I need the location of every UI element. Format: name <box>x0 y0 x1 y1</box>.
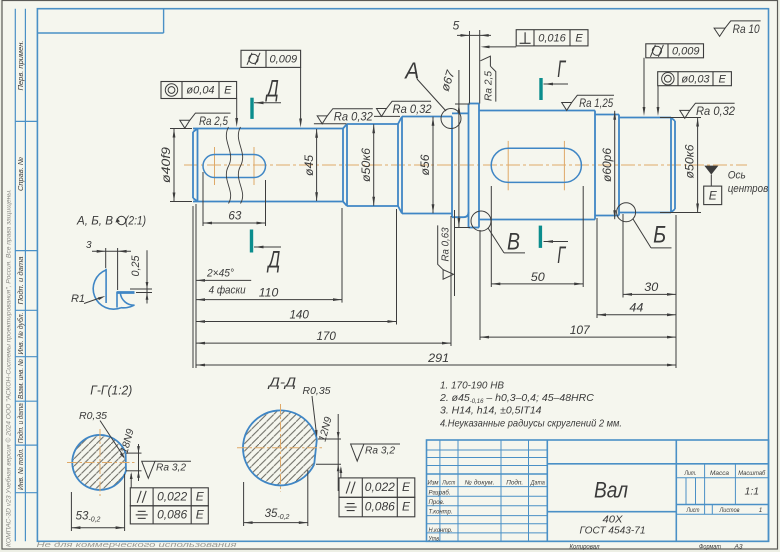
svg-text:Г-Г(1:2): Г-Г(1:2) <box>90 384 132 398</box>
svg-text:1: 1 <box>759 507 763 514</box>
svg-text:2×45°: 2×45° <box>206 268 234 280</box>
svg-text:50: 50 <box>531 270 545 284</box>
svg-text:КОМПАС-3D v23 Учебная версия ©: КОМПАС-3D v23 Учебная версия © 2024 ООО … <box>5 189 13 547</box>
svg-text:Д-Д: Д-Д <box>267 376 297 390</box>
svg-text:Перв. примен.: Перв. примен. <box>16 40 25 90</box>
svg-text:Подп. и дата: Подп. и дата <box>16 403 25 443</box>
svg-text:Г: Г <box>557 56 566 83</box>
svg-text:E: E <box>196 507 205 521</box>
svg-text:ø50к6: ø50к6 <box>683 144 697 178</box>
svg-text:5: 5 <box>453 19 460 33</box>
svg-text:140: 140 <box>289 307 309 321</box>
svg-text:ø50к6: ø50к6 <box>359 148 373 182</box>
svg-text:E: E <box>402 480 411 494</box>
svg-text:0,009: 0,009 <box>270 53 298 65</box>
svg-text:0,086: 0,086 <box>157 507 187 521</box>
svg-text:3. Н14, h14, ±0,5IT14: 3. Н14, h14, ±0,5IT14 <box>440 405 542 417</box>
svg-text:Разраб.: Разраб. <box>429 489 451 497</box>
svg-text:E: E <box>709 189 718 203</box>
svg-text:107: 107 <box>570 323 591 337</box>
svg-text:Ra 0,32: Ra 0,32 <box>696 106 736 118</box>
svg-text:R1: R1 <box>71 293 85 305</box>
svg-text:Н.контр.: Н.контр. <box>429 527 453 534</box>
svg-text:E: E <box>719 73 727 85</box>
svg-text:Пров.: Пров. <box>429 499 445 506</box>
svg-text:Формат: Формат <box>699 544 721 551</box>
svg-text:0,022: 0,022 <box>157 489 187 503</box>
svg-text:Справ. №: Справ. № <box>16 157 25 191</box>
svg-text:ø60p6: ø60p6 <box>600 148 614 182</box>
svg-text:0,009: 0,009 <box>672 45 700 57</box>
svg-text:44: 44 <box>629 301 643 315</box>
svg-text:Взам. инв. №: Взам. инв. № <box>16 359 25 399</box>
svg-text:Дата: Дата <box>530 479 545 486</box>
svg-text:Не для коммерческого использов: Не для коммерческого использования <box>37 541 237 549</box>
svg-text:(2:1): (2:1) <box>125 216 146 228</box>
svg-text:Ra 0,32: Ra 0,32 <box>393 104 433 116</box>
svg-text:Лист: Лист <box>442 479 456 486</box>
svg-text:4 фаски: 4 фаски <box>209 285 246 297</box>
svg-text:Ось: Ось <box>728 170 746 182</box>
svg-text:ø0,03: ø0,03 <box>681 73 710 85</box>
svg-text:E: E <box>402 500 411 514</box>
svg-text:Ra 0,63: Ra 0,63 <box>441 227 452 261</box>
svg-text:Подп. и дата: Подп. и дата <box>16 257 25 305</box>
svg-text:Д: Д <box>266 247 280 274</box>
svg-text:R0,35: R0,35 <box>303 386 331 397</box>
svg-text:ø40f9: ø40f9 <box>159 147 173 183</box>
svg-text:Д: Д <box>265 76 279 103</box>
svg-text:Ra 1,25: Ra 1,25 <box>579 98 614 110</box>
svg-text:ø45: ø45 <box>302 155 316 176</box>
svg-text:Г: Г <box>557 242 566 269</box>
svg-text:А3: А3 <box>733 544 742 551</box>
svg-text:Масштаб: Масштаб <box>738 469 765 477</box>
svg-text:Ra 3,2: Ra 3,2 <box>156 463 186 474</box>
svg-text:№ докум.: № докум. <box>465 478 495 486</box>
svg-text:Ra 2,5: Ra 2,5 <box>484 71 495 101</box>
svg-text:E: E <box>196 489 205 503</box>
svg-text:Т.контр.: Т.контр. <box>429 509 453 516</box>
svg-text:2. ø45-0,16 – h0,3–0,4; 45–48: 2. ø45-0,16 – h0,3–0,4; 45–48HRC <box>439 392 594 405</box>
svg-text:А, Б, В: А, Б, В <box>76 216 113 228</box>
svg-text:Ra 0,32: Ra 0,32 <box>334 111 374 123</box>
svg-text:0,022: 0,022 <box>365 480 395 494</box>
svg-text:E: E <box>224 85 232 97</box>
svg-text:Лит.: Лит. <box>684 470 697 477</box>
svg-text:110: 110 <box>259 285 279 299</box>
svg-text:1:1: 1:1 <box>744 486 759 498</box>
svg-text:0,086: 0,086 <box>365 500 395 514</box>
svg-text:Инв. № подл.: Инв. № подл. <box>16 448 25 490</box>
svg-text:3: 3 <box>86 240 92 251</box>
svg-text:Масса: Масса <box>710 470 729 477</box>
svg-text:Копировал: Копировал <box>570 544 600 551</box>
svg-text:291: 291 <box>427 351 449 365</box>
svg-text:63: 63 <box>228 208 241 222</box>
svg-text:Ra 10: Ra 10 <box>733 24 761 36</box>
svg-text:Подп.: Подп. <box>506 478 523 486</box>
svg-text:Изм: Изм <box>428 479 440 486</box>
svg-text:В: В <box>507 229 520 256</box>
svg-text:ГОСТ 4543-71: ГОСТ 4543-71 <box>580 525 646 537</box>
svg-text:170: 170 <box>316 329 336 343</box>
svg-text:4.Неуказанные радиусы скруглен: 4.Неуказанные радиусы скруглений 2 мм. <box>440 418 622 430</box>
svg-text:30: 30 <box>644 280 658 294</box>
svg-text:1. 170-190 НВ: 1. 170-190 НВ <box>440 380 504 392</box>
svg-text:ø56: ø56 <box>418 154 432 175</box>
svg-text:Листов: Листов <box>719 507 740 514</box>
svg-text:0,25: 0,25 <box>130 255 142 277</box>
svg-text:Утв.: Утв. <box>428 536 441 543</box>
svg-text:E: E <box>575 32 583 44</box>
svg-text:R0,35: R0,35 <box>79 411 107 422</box>
svg-text:Ra 3,2: Ra 3,2 <box>365 445 395 456</box>
svg-text:Б: Б <box>653 221 666 248</box>
svg-text:Вал: Вал <box>594 478 628 503</box>
svg-text:Инв. № дубл.: Инв. № дубл. <box>16 312 25 354</box>
svg-text:ø0,04: ø0,04 <box>186 85 214 97</box>
svg-text:Лист: Лист <box>686 507 700 514</box>
svg-text:Ra 2,5: Ra 2,5 <box>199 116 229 128</box>
svg-text:А: А <box>403 58 419 84</box>
svg-text:0,016: 0,016 <box>538 32 566 44</box>
svg-text:центров: центров <box>728 183 769 195</box>
